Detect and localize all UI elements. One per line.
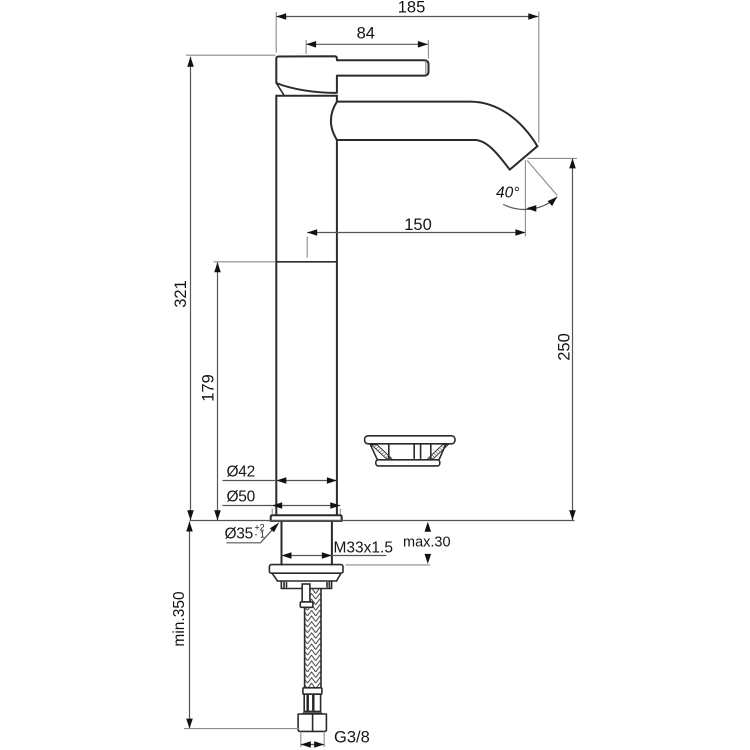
svg-text:179: 179 [200,374,218,402]
svg-text:321: 321 [172,280,190,308]
svg-text:Ø50: Ø50 [227,489,256,506]
svg-text:min.350: min.350 [171,591,188,647]
svg-text:G3/8: G3/8 [334,729,370,747]
svg-text:Ø35: Ø35 [225,525,253,542]
svg-text:40°: 40° [496,185,519,202]
svg-text:150: 150 [404,216,432,234]
svg-text:- 1: - 1 [255,529,265,539]
svg-text:M33x1.5: M33x1.5 [334,539,393,556]
svg-text:185: 185 [398,0,426,17]
svg-text:250: 250 [556,333,574,361]
svg-text:Ø42: Ø42 [227,463,255,480]
svg-text:84: 84 [357,24,375,42]
svg-text:max.30: max.30 [403,534,451,550]
